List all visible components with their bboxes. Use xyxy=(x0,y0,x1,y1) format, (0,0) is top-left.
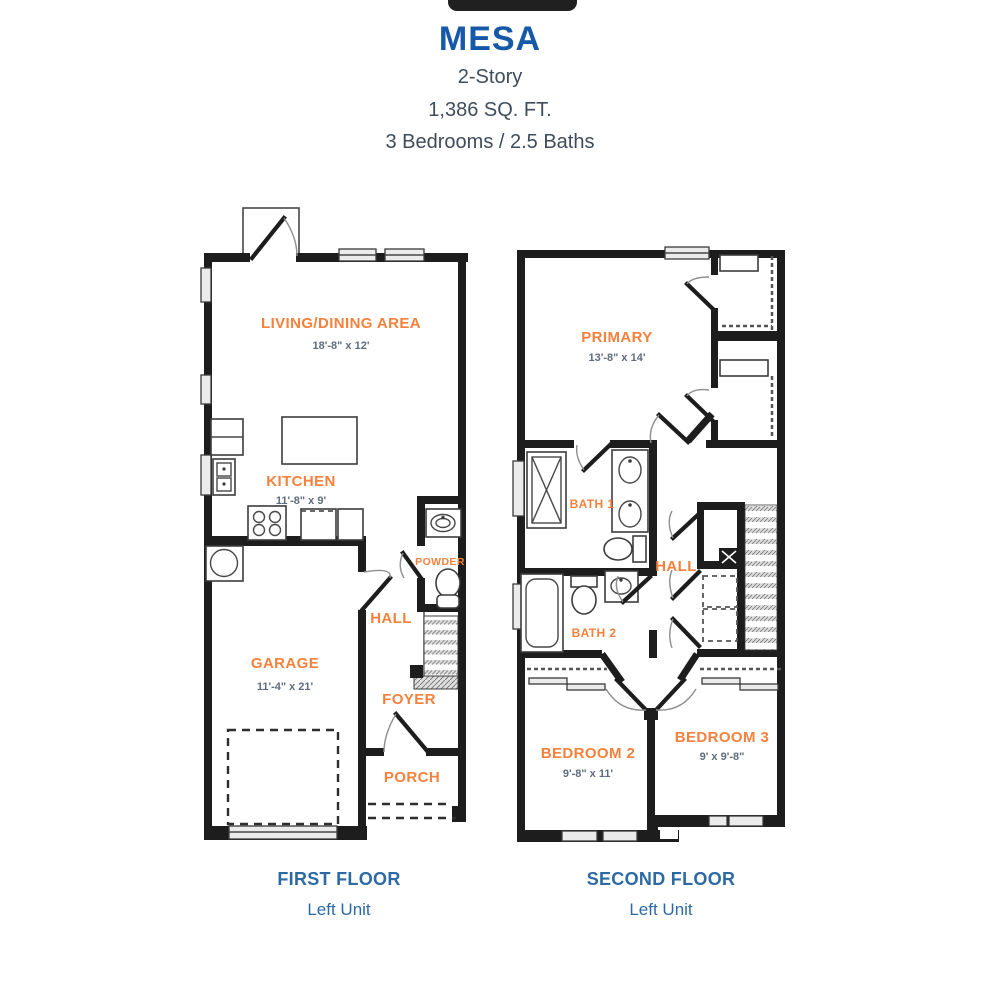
garage-hall-door-icon xyxy=(362,570,390,610)
first-floor-caption-unit: Left Unit xyxy=(229,900,449,920)
window-icon xyxy=(729,816,763,826)
stairs-second-floor xyxy=(669,505,777,650)
room-dims-living: 18'-8" x 12' xyxy=(313,340,370,352)
room-label-primary: PRIMARY xyxy=(581,329,652,346)
porch-boundary xyxy=(368,804,456,818)
shower-icon xyxy=(527,452,566,528)
room-label-living: LIVING/DINING AREA xyxy=(261,315,421,332)
kitchen-sink-icon xyxy=(213,459,235,495)
window-icon xyxy=(201,455,211,495)
primary-closets xyxy=(687,255,772,438)
room-label-kitchen: KITCHEN xyxy=(266,473,335,490)
room-label-hall-2: HALL xyxy=(655,558,697,575)
second-floor-caption-unit: Left Unit xyxy=(551,900,771,920)
toilet-icon xyxy=(436,569,460,608)
room-dims-primary: 13'-8" x 14' xyxy=(589,352,646,364)
room-dims-bedroom2: 9'-8" x 11' xyxy=(563,768,614,780)
bath1-door-icon xyxy=(577,444,611,470)
bedroom3-closet xyxy=(700,669,783,690)
front-door-icon xyxy=(384,714,428,752)
garage-door-icon xyxy=(229,826,337,839)
room-label-bath2: BATH 2 xyxy=(572,626,617,640)
counter-icon xyxy=(338,509,363,540)
room-label-bedroom3: BEDROOM 3 xyxy=(675,729,769,746)
room-label-powder: POWDER xyxy=(415,556,465,568)
stairhead-door-icon xyxy=(669,511,701,538)
floor-plan-page: MESA 2-Story 1,386 SQ. FT. 3 Bedrooms / … xyxy=(0,0,1000,999)
room-label-garage: GARAGE xyxy=(251,655,319,672)
closet-shelf xyxy=(720,360,768,376)
room-dims-kitchen: 11'-8" x 9' xyxy=(276,495,327,507)
bypass-door-icon xyxy=(702,678,740,684)
stairs-first-floor xyxy=(410,612,458,689)
window-icon xyxy=(513,461,524,516)
dishwasher-icon xyxy=(301,509,336,540)
bypass-door-icon xyxy=(529,678,567,684)
bedroom2-closet xyxy=(527,669,607,690)
car-space-outline xyxy=(228,730,338,824)
dryer-icon xyxy=(703,609,737,641)
window-icon xyxy=(201,375,211,404)
first-floor-caption-title: FIRST FLOOR xyxy=(229,869,449,890)
bedroom2-door-icon xyxy=(606,680,646,710)
newel-post xyxy=(410,665,423,678)
washer-icon xyxy=(703,576,737,607)
toilet-icon xyxy=(571,576,597,614)
second-floor-caption-title: SECOND FLOOR xyxy=(551,869,771,890)
window-icon xyxy=(603,831,637,841)
stove-icon xyxy=(248,506,286,540)
window-icon xyxy=(562,831,597,841)
bypass-door-icon xyxy=(740,684,778,690)
closet-shelf xyxy=(720,255,758,271)
chase-icon xyxy=(719,548,739,566)
bathtub-icon xyxy=(521,574,563,652)
first-floor-plan: LIVING/DINING AREA 18'-8" x 12' KITCHEN … xyxy=(201,208,468,840)
room-label-bath1: BATH 1 xyxy=(570,497,615,511)
second-floor-plan: PRIMARY 13'-8" x 14' BATH 1 HALL BATH 2 … xyxy=(513,247,785,842)
closet-door-icon xyxy=(687,390,712,420)
room-dims-bedroom3: 9' x 9'-8" xyxy=(700,751,745,763)
water-heater-icon xyxy=(206,546,243,581)
second-floor-caption: SECOND FLOOR Left Unit xyxy=(551,869,771,920)
room-label-porch: PORCH xyxy=(384,769,440,786)
room-label-foyer: FOYER xyxy=(382,691,436,708)
sink-icon xyxy=(605,571,638,602)
room-dims-garage: 11'-4" x 21' xyxy=(257,681,314,693)
floor-plans-canvas: LIVING/DINING AREA 18'-8" x 12' KITCHEN … xyxy=(0,0,1000,999)
toilet-icon xyxy=(604,536,646,562)
bedroom3-door-icon xyxy=(656,680,696,710)
window-icon xyxy=(709,816,727,826)
room-label-bedroom2: BEDROOM 2 xyxy=(541,745,635,762)
kitchen-island xyxy=(282,417,357,464)
closet-door-icon xyxy=(687,277,712,308)
laundry-door-icon xyxy=(670,570,699,648)
bypass-door-icon xyxy=(567,684,605,690)
room-label-hall-1: HALL xyxy=(370,610,412,627)
primary-door-icon xyxy=(650,415,688,443)
laundry-closet xyxy=(670,570,737,648)
first-floor-caption: FIRST FLOOR Left Unit xyxy=(229,869,449,920)
window-icon xyxy=(201,268,211,302)
